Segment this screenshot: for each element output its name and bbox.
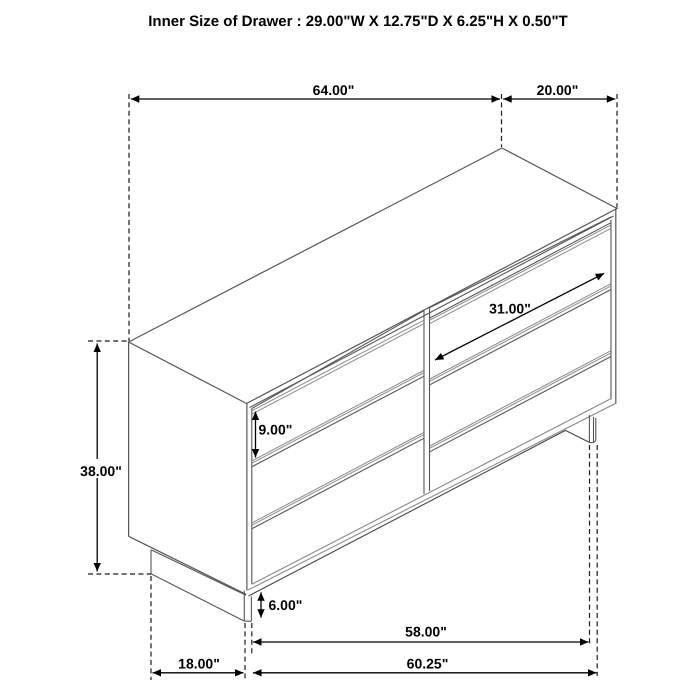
svg-text:31.00": 31.00" bbox=[489, 301, 531, 317]
svg-text:58.00": 58.00" bbox=[405, 624, 447, 640]
svg-text:Inner Size of Drawer : 29.00"W: Inner Size of Drawer : 29.00"W X 12.75"D… bbox=[148, 13, 567, 30]
svg-text:18.00": 18.00" bbox=[178, 656, 220, 672]
svg-text:60.25": 60.25" bbox=[407, 656, 449, 672]
svg-text:64.00": 64.00" bbox=[313, 82, 355, 98]
svg-text:38.00": 38.00" bbox=[80, 463, 122, 479]
svg-text:6.00": 6.00" bbox=[269, 597, 303, 613]
svg-text:20.00": 20.00" bbox=[537, 82, 579, 98]
svg-text:9.00": 9.00" bbox=[259, 422, 293, 438]
